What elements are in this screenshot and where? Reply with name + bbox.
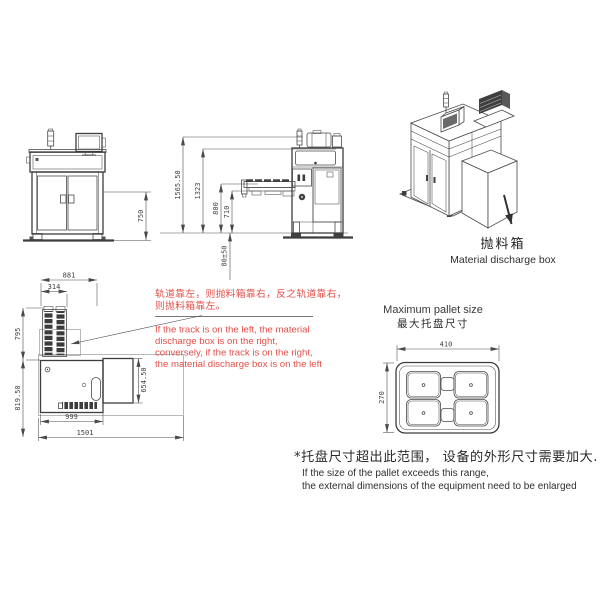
dim-pallet-width-label: 410 [440, 341, 453, 349]
footnote-en-line1: If the size of the pallet exceeds this r… [302, 468, 489, 479]
red-note-en-line1: If the track is on the left, the materia… [155, 325, 310, 336]
height-dimensions: 1565.50 1323 800 710 80±50 [160, 137, 348, 280]
dim-table-height-label: 750 [137, 210, 145, 223]
dim-total-height-label: 1565.50 [174, 170, 182, 200]
dim-track-height-label: 710 [223, 206, 231, 219]
discharge-box-label-cn: 抛料箱 [480, 236, 525, 252]
dim-track-depth-label: 795 [14, 328, 22, 341]
dim-body-depth-label: 819.50 [14, 385, 22, 410]
dim-discharge-depth-label: 654.50 [140, 367, 148, 392]
dim-frame-height-label: 1323 [194, 183, 202, 200]
dim-feet-range-label: 80±50 [221, 245, 229, 266]
dim-overall-width-label: 881 [63, 272, 76, 280]
isometric-view: 抛料箱 Material discharge box [400, 90, 557, 266]
drawing-svg: 750 1565.50 1323 800 710 80±50 [0, 0, 600, 600]
pallet-title-cn: 最大托盘尺寸 [397, 317, 469, 330]
dim-arm-height-label: 800 [212, 202, 220, 215]
red-note-en-line2: discharge box is on the right, [155, 336, 278, 347]
dim-body-width-label: 999 [65, 413, 78, 421]
front-view: 750 [23, 129, 151, 241]
footnote-cn: *托盘尺寸超出此范围， 设备的外形尺寸需要加大. [294, 448, 598, 465]
discharge-box-label-en: Material discharge box [450, 254, 556, 266]
track-side-note: 轨道靠左，则抛料箱靠右，反之轨道靠右， 则抛料箱靠左。 If the track… [155, 287, 347, 370]
footnote-en-line2: the external dimensions of the equipment… [302, 481, 577, 492]
pallet-title-en: Maximum pallet size [383, 304, 483, 316]
dim-footprint-width-label: 1501 [77, 429, 94, 437]
red-note-en-line3: conversely, if the track is on the right… [155, 348, 313, 359]
red-note-en-line4: the material discharge box is on the lef… [155, 359, 322, 370]
dim-pallet-height-label: 270 [378, 391, 386, 404]
dim-track-width-label: 314 [48, 283, 61, 291]
engineering-drawing-page: 750 1565.50 1323 800 710 80±50 [0, 0, 600, 600]
side-view [242, 129, 354, 238]
pallet-diagram: Maximum pallet size 最大托盘尺寸 410 270 [378, 304, 499, 433]
red-note-cn-line1: 轨道靠左，则抛料箱靠右，反之轨道靠右， [155, 287, 347, 300]
red-note-cn-line2: 则抛料箱靠左。 [155, 299, 226, 312]
pallet-footnote: *托盘尺寸超出此范围， 设备的外形尺寸需要加大. If the size of … [294, 448, 598, 492]
